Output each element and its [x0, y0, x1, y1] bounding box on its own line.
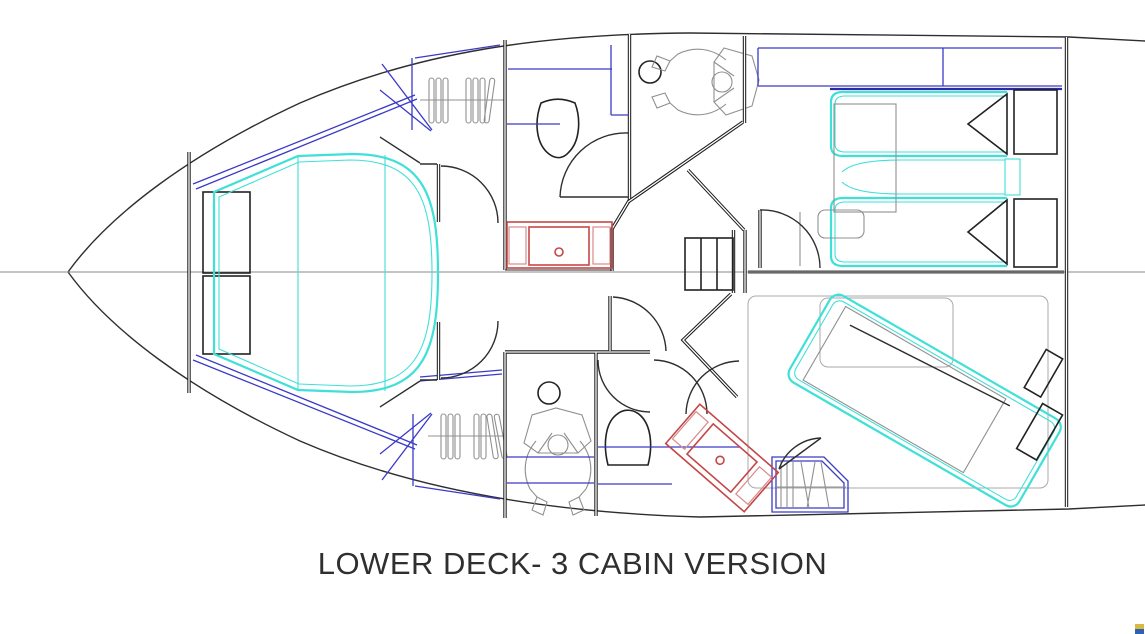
- aft-nightstand-2: [1017, 403, 1063, 460]
- hanging-locker-upper: [420, 78, 504, 123]
- twin-cabin-shelf: [758, 48, 1062, 89]
- floor-plan-page: LOWER DECK- 3 CABIN VERSION: [0, 0, 1145, 634]
- sink-basin-lower: [538, 382, 560, 404]
- sink-basin: [639, 61, 661, 83]
- forward-head-toilet: [537, 99, 579, 157]
- hanging-locker-lower: [428, 414, 507, 459]
- seated-figure-lower: [524, 408, 591, 515]
- twin-berths: [800, 90, 1057, 267]
- companionway-steps: [685, 230, 745, 293]
- nightstand-lower: [1014, 199, 1057, 267]
- plan-title: LOWER DECK- 3 CABIN VERSION: [0, 546, 1145, 582]
- aft-vanity: [666, 404, 779, 511]
- floor-plan-drawing: [0, 0, 1145, 634]
- hull-outline: [68, 33, 1145, 517]
- lower-bathroom: [505, 352, 650, 518]
- bow-seats: [203, 192, 250, 354]
- twin-cabin-door: [760, 210, 820, 268]
- forward-head-vanity: [507, 222, 612, 268]
- berth-infill: [834, 104, 896, 212]
- aft-berth: [785, 291, 1064, 510]
- nightstand-upper: [1014, 90, 1057, 154]
- forward-head-shelves: [507, 45, 629, 124]
- aft-cabin: [666, 291, 1065, 512]
- forward-head-door: [560, 133, 628, 197]
- midship-upper-room: [628, 36, 759, 230]
- cabin-step: [818, 210, 864, 238]
- aft-nightstand-1: [1024, 349, 1062, 397]
- watermark-icon: [1135, 629, 1144, 634]
- lower-vestibule: [612, 294, 739, 414]
